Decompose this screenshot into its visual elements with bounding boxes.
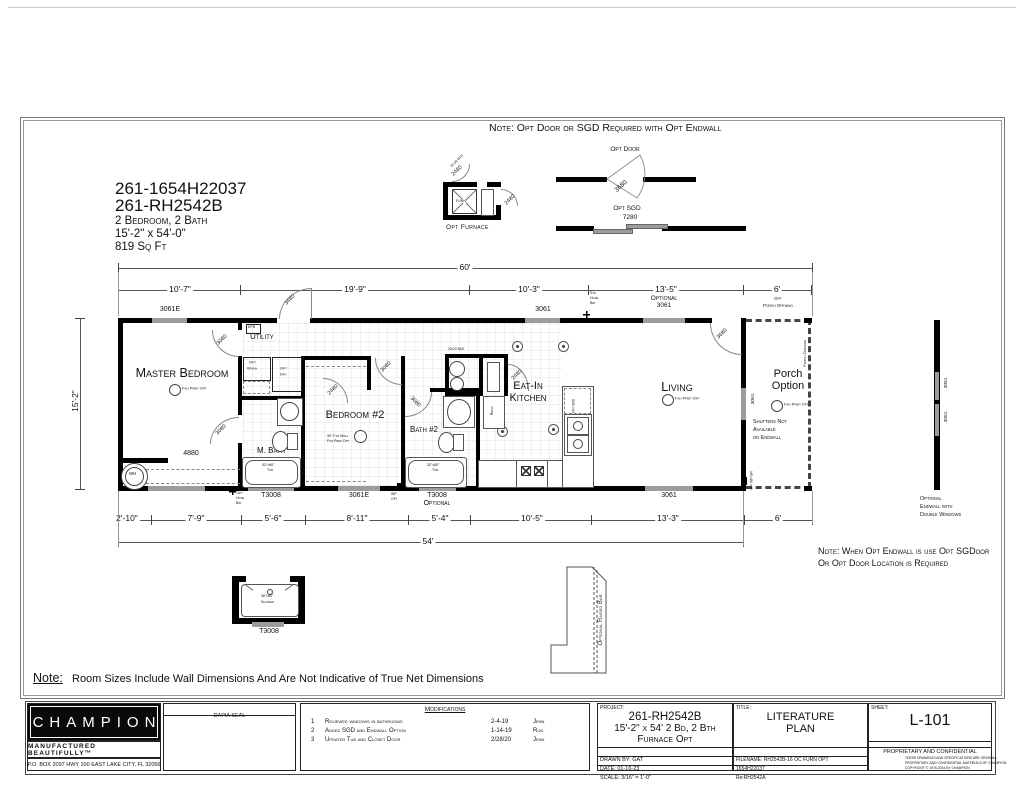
fan-prep-label: Fan Prep Opt <box>182 386 207 391</box>
room-living: Living <box>661 380 692 394</box>
water-heater-label: WH <box>129 471 136 476</box>
wp-gfi-label: GFI <box>391 497 397 501</box>
bottom-note-label: Note: <box>33 671 63 685</box>
opt-wp-gfi-label: Opt WP GFI <box>750 471 754 490</box>
dim-left: 15'-2" <box>70 388 80 414</box>
shutters-note: on Endwall <box>753 434 781 440</box>
dim-tick <box>241 515 242 525</box>
sink-drain <box>573 439 583 449</box>
closet-size-label: 20x20 BAG <box>448 347 464 351</box>
cabinet-door <box>487 362 500 392</box>
sheet-box: SHEET: L-101 PROPRIETARY AND CONFIDENTIA… <box>868 703 992 771</box>
furnace-door-panel <box>481 189 494 216</box>
dim-tick <box>743 285 744 295</box>
plan-size: 15'-2" x 54'-0" <box>115 228 186 240</box>
opt-hose-bib-label: Bib <box>236 501 241 505</box>
porch-wall-dashed <box>746 486 810 489</box>
dim-tick <box>408 515 409 525</box>
room-porch: Porch <box>774 368 803 380</box>
mod-row-date: 2/28/20 <box>491 737 511 743</box>
sheet-number: L-101 <box>869 712 991 730</box>
room-porch: Option <box>772 380 804 392</box>
wall <box>238 323 242 330</box>
window-label: 3061 <box>659 492 679 499</box>
fan-symbol <box>354 430 367 443</box>
sheet-label: SHEET: <box>871 705 889 711</box>
address-box: P.O. BOX 2097 HWY 100 EAST LAKE CITY, FL… <box>27 758 161 771</box>
dim-top-2: 10'-3" <box>516 284 542 294</box>
sink <box>447 399 471 425</box>
window-3061e-top <box>152 318 187 323</box>
sheet-title: LITERATURE <box>734 711 867 723</box>
optional-window-label: Optional <box>634 295 694 302</box>
window-3061-porchwall <box>741 388 746 420</box>
dapia-seal-label: DAPIA SEAL <box>214 713 246 719</box>
dim-line <box>80 318 81 490</box>
opt-sgd-caption: Opt SGD <box>613 205 640 212</box>
mod-row-desc: Reviewed windows in bathrooms <box>325 719 402 725</box>
dim-bottom-5: 10'-5" <box>519 513 545 523</box>
project-box: PROJECT: 261-RH2542B 15'-2" x 54' 2 Bd, … <box>597 703 733 771</box>
porch-window-label: 3061 <box>750 394 755 405</box>
optional-dash <box>306 481 366 482</box>
mod-row-desc: Updated Tub and Closet Door <box>325 737 400 743</box>
ext-line <box>118 491 119 546</box>
endwall-caption: Endwall with <box>920 503 952 509</box>
plumbing-s12 <box>450 377 464 391</box>
drawing-sheet: Note: Opt Door or SGD Required with Opt … <box>0 0 1024 791</box>
mod-row-date: 2-4-19 <box>491 719 508 725</box>
window-label: T3008 <box>259 492 283 499</box>
closet-shelf-dash <box>306 366 366 367</box>
dim-total-bottom: 54' <box>420 536 435 546</box>
refrigerator <box>483 396 505 429</box>
divider <box>869 747 991 748</box>
dim-bottom-4: 5'-4" <box>430 513 451 523</box>
sheet-title: PLAN <box>734 723 867 735</box>
tub-size-label: 32"x60" <box>262 463 274 467</box>
plan-beds: 2 Bedroom, 2 Bath <box>115 215 207 227</box>
mod-row-num: 2 <box>311 728 314 734</box>
dim-tick <box>75 318 85 319</box>
dim-tick <box>75 489 85 490</box>
endwall-note: Note: When Opt Endwall is use Opt SGDoor <box>818 546 989 556</box>
hose-bib-marker <box>583 311 590 318</box>
dim-top-0: 10'-7" <box>167 284 193 294</box>
opt-dryer-label: Opt <box>280 366 287 371</box>
room-master: Master Bedroom <box>136 366 229 380</box>
std-hose-bib-label: Hose <box>590 296 598 300</box>
fan-prep-label: Fan Prep Opt <box>675 396 700 401</box>
raised-bar-detail: Optional Raised Bar <box>546 558 610 680</box>
mod-row-num: 3 <box>311 737 314 743</box>
burner-icon <box>521 466 531 476</box>
fan-prep-label: Fan Prep Opt <box>784 402 809 407</box>
sgd-panel <box>593 229 633 234</box>
top-note: Note: Opt Door or SGD Required with Opt … <box>489 122 722 134</box>
tagline-box: MANUFACTURED BEAUTIFULLY™ <box>27 741 161 758</box>
window-label: 3061E <box>347 492 371 499</box>
sink <box>280 402 299 421</box>
title-box: TITLE: LITERATURE PLAN FILENAME: RH2542B… <box>733 703 868 771</box>
opt-washer-dryer <box>564 388 591 414</box>
ext-line <box>812 272 813 316</box>
modifications-header: Modifications <box>301 706 589 713</box>
scale-row: SCALE: 3/16" = 1'-0" <box>598 765 732 773</box>
opt-sgd-size: 7280 <box>623 214 637 221</box>
mod-row-desc: Added SGD and Endwall Option <box>325 728 406 734</box>
page-edge-line <box>8 7 1016 8</box>
endwall-window <box>935 372 939 400</box>
shower-size-label: 36"x60" <box>261 594 273 598</box>
tub-label: Tub <box>432 468 438 472</box>
shutters-note: Shutters Not <box>753 418 787 424</box>
model-number-2: 261-RH2542B <box>115 196 223 216</box>
dim-bottom-3: 8'-11" <box>344 513 369 523</box>
ext-line <box>812 491 813 524</box>
window-label: 3061E <box>158 306 182 313</box>
wall-nub <box>804 486 812 491</box>
gfi-marker <box>397 483 402 489</box>
tagline: MANUFACTURED BEAUTIFULLY™ <box>28 743 160 757</box>
std-hose-bib-label: Std <box>590 291 596 295</box>
sink-drain <box>573 421 583 431</box>
dim-tick <box>591 515 592 525</box>
sgd-panel <box>626 224 668 229</box>
file-row: Re:RH2542A <box>734 765 867 773</box>
wall <box>118 318 123 491</box>
opt-washer-label: Wash <box>247 366 257 371</box>
endwall-window-label: 3061 <box>943 412 948 423</box>
window-label: 3061 <box>533 306 553 313</box>
confidential-text: COPYRIGHT © 1976-2024 BY CHAMPION <box>905 766 957 770</box>
room-bedroom2: Bedroom #2 <box>326 409 385 421</box>
project-model: 261-RH2542B <box>598 711 732 723</box>
wall <box>487 182 501 187</box>
wall <box>301 356 371 360</box>
project-size: 15'-2" x 54' 2 Bd, 2 Bth <box>598 723 732 734</box>
plumbing-r14 <box>449 361 465 377</box>
endwall-caption: Optional <box>920 495 942 501</box>
wall <box>556 226 594 231</box>
hose-bib-marker <box>229 488 236 495</box>
ceiling-light-icon <box>512 341 523 352</box>
fan-symbol <box>169 384 181 396</box>
fan-wall-label: 30" Fan Wall <box>327 434 348 438</box>
window-label-optional: Optional <box>422 500 453 507</box>
dim-tick <box>469 285 470 295</box>
dim-tick <box>588 285 589 295</box>
mod-row-by: Jenn <box>533 719 544 725</box>
bottom-note-text: Room Sizes Include Wall Dimensions And A… <box>72 673 484 685</box>
window-3061e-bottom <box>338 486 380 491</box>
shower-label: Shower <box>261 600 274 604</box>
modifications-box: Modifications 1 Reviewed windows in bath… <box>300 703 590 771</box>
file-ref: Re:RH2542A <box>734 775 765 781</box>
wall <box>232 576 239 624</box>
dapia-seal-box: DAPIA SEAL <box>163 703 296 771</box>
window-3061-optional <box>643 318 685 323</box>
window-4880 <box>148 486 205 491</box>
washer-dash <box>243 381 270 394</box>
confidential-text: THESE DRAWINGS AND SPECIFICATIONS ARE OR… <box>905 756 957 760</box>
wall <box>367 356 371 390</box>
wall <box>298 576 305 624</box>
wall <box>445 354 483 358</box>
window-3061-top <box>525 318 560 323</box>
dim-top-1: 19'-9" <box>342 284 368 294</box>
room-bath2: Bath #2 <box>410 425 438 434</box>
dim-top-3: 13'-5" <box>653 284 679 294</box>
wall <box>479 354 483 396</box>
project-option: Furnace Opt <box>598 734 732 745</box>
epb-label: EPB <box>248 325 255 329</box>
endwall-caption: Double Windows <box>920 511 961 517</box>
opt-dryer-label: Dry <box>280 372 287 377</box>
opt-hose-bib-label: Hose <box>236 496 244 500</box>
dim-tick <box>151 515 152 525</box>
fan-symbol <box>771 400 783 412</box>
plan-area: 819 Sq Ft <box>115 241 166 253</box>
ceiling-light-icon <box>558 341 569 352</box>
dim-total-top: 60' <box>457 262 472 272</box>
mod-row-by: Rod <box>533 728 543 734</box>
opt-door-symbol: 3680 <box>550 140 710 202</box>
raised-bar-label: Optional Raised Bar <box>598 594 604 645</box>
mod-row-by: Jenn <box>533 737 544 743</box>
wall <box>118 318 277 323</box>
dim-line <box>118 520 813 521</box>
window-3061-bottom <box>645 486 693 491</box>
wall-nub <box>804 318 812 323</box>
dim-bottom-2: 5'-6" <box>263 513 284 523</box>
dim-line <box>118 290 811 291</box>
wall <box>118 458 168 463</box>
shower-window <box>252 622 284 627</box>
wall <box>238 356 242 415</box>
std-hose-bib-label: Bib <box>590 301 595 305</box>
endwall-window <box>935 404 939 436</box>
fan-symbol <box>662 394 674 406</box>
mod-row-date: 1-14-19 <box>491 728 512 734</box>
opt-washer-label: Opt <box>249 360 256 365</box>
confidential-text: PROPRIETARY AND CONFIDENTIAL MATERIALS O… <box>905 761 957 765</box>
dim-bottom-6: 13'-3" <box>655 513 681 523</box>
dim-top-4: 6' <box>772 284 782 294</box>
wp-gfi-label: WP <box>391 492 397 496</box>
dim-tick <box>240 285 241 295</box>
optional-window-dash <box>146 469 250 484</box>
champion-logo-box: CHAMPION <box>27 703 161 741</box>
furnace-label: FURN <box>456 199 466 203</box>
ceiling-light-icon <box>548 424 559 435</box>
window-label: 4880 <box>181 450 201 457</box>
burner-icon <box>534 466 544 476</box>
room-kitchen: Kitchen <box>509 392 546 404</box>
opt-porch-opening-label: Porch Opening <box>762 303 795 308</box>
water-heater-inner <box>125 467 144 486</box>
opt-washer-dryer-label: Opt W/D <box>571 399 575 413</box>
shutters-note: Available <box>753 426 776 432</box>
confidential-head: PROPRIETARY AND CONFIDENTIAL <box>869 749 991 755</box>
refrigerator-label: Refr <box>489 406 494 415</box>
window-label: T3008 <box>425 492 449 499</box>
ext-line <box>743 491 744 546</box>
wall <box>662 226 746 231</box>
mod-row-num: 1 <box>311 719 314 725</box>
toilet-tank <box>287 433 298 450</box>
wall <box>445 354 449 396</box>
toilet-tank <box>453 434 464 451</box>
endwall-window-label: 3061 <box>943 378 948 389</box>
shower-tag: T3008 <box>257 628 281 635</box>
porch-wall-dashed <box>746 319 810 322</box>
divider <box>869 741 991 742</box>
dim-bottom-1: 7'-9" <box>186 513 207 523</box>
opt-furnace-caption: Opt Furnace <box>446 224 489 231</box>
optional-window-size: 3061 <box>634 302 694 309</box>
dapia-seal-label-row: DAPIA SEAL <box>164 704 295 716</box>
address: P.O. BOX 2097 HWY 100 EAST LAKE CITY, FL… <box>28 762 161 768</box>
opt-hose-bib-label: Opt <box>236 491 242 495</box>
opt-porch-opening-label: Opt <box>762 296 795 301</box>
gfi-marker <box>741 477 747 485</box>
room-kitchen: Eat-In <box>513 380 542 392</box>
ext-line <box>118 272 119 316</box>
dim-bottom-7: 6' <box>773 513 783 523</box>
porch-opening-label: Porch Opening <box>802 340 807 367</box>
tub-size-label: 32"x60" <box>427 463 439 467</box>
fan-prep-label: Fan Prep Opt <box>327 439 349 443</box>
dim-tick <box>744 515 745 525</box>
dim-tick <box>305 515 306 525</box>
wall <box>443 182 477 187</box>
endwall-note: Or Opt Door Location is Required <box>818 558 948 568</box>
brand-name: CHAMPION <box>27 714 162 731</box>
champion-logo-inner: CHAMPION <box>30 706 158 738</box>
dim-tick <box>470 515 471 525</box>
tub-label: Tub <box>267 468 273 472</box>
scale: SCALE: 3/16" = 1'-0" <box>598 775 651 781</box>
